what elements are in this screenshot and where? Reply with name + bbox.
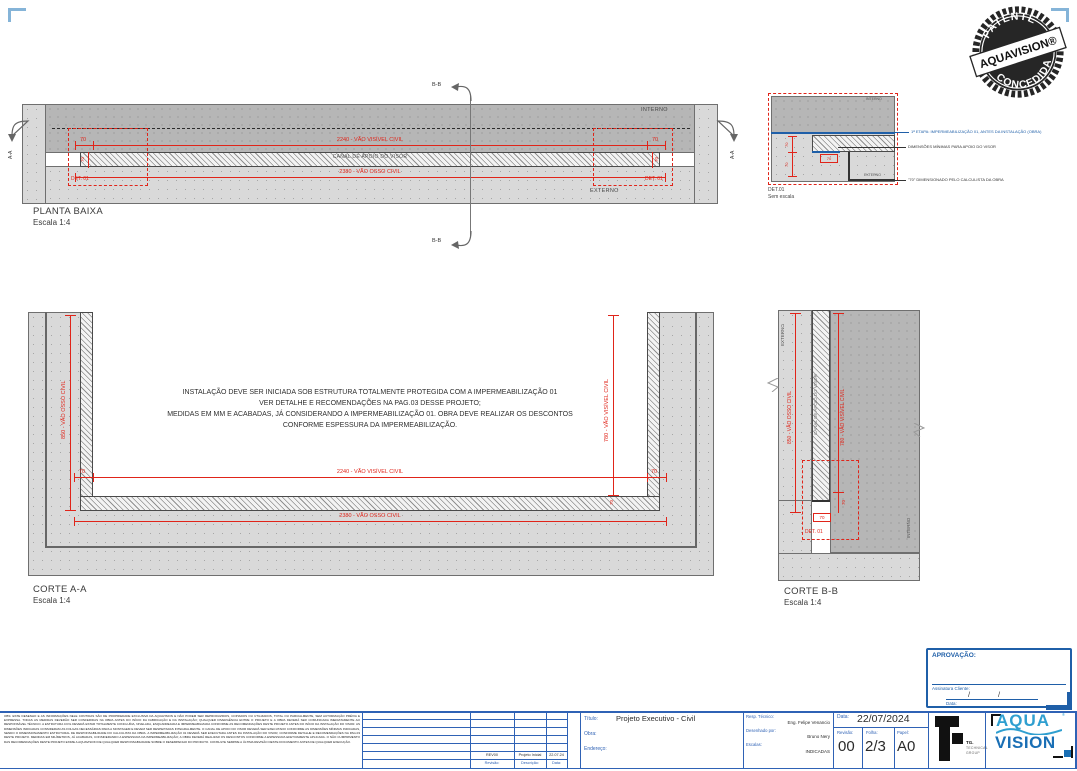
plan-dim-visivel: 2240 - VÃO VISÍVEL CIVIL [270,137,470,143]
resp-tecnico-label: Resp. Técnico: [746,714,774,719]
detail-dim-70-a: 70 [784,138,789,151]
dim-tick [74,517,75,526]
detail-impermeabilizacao-line [771,132,895,134]
corteaa-dim-visivel-line [74,477,666,478]
leader-line-dimensoes [838,147,906,148]
fine-print-notes: OBS: ESTE DESENHO E AS INFORMAÇÕES NELE … [4,714,360,767]
leader-line-blue [895,132,909,133]
approval-signature-label: Assinatura Cliente: [932,686,970,691]
corteaa-dim-visivel-vert: 780 - VÃO VISÍVEL CIVIL [604,350,610,470]
tb-vline [985,712,986,768]
escalas-label: Escalas: [746,742,762,747]
corteaa-dim-visivel-vert-line [613,315,614,496]
cortebb-slab-bottom [778,553,920,581]
approval-date-label: Data: [946,701,957,706]
papel-value: A0 [897,738,915,755]
plan-end-cap-right [694,104,718,204]
dim-tick [647,473,648,482]
revision-row-desc: Projeto Inicial [514,753,546,757]
data-label: Data: [837,714,849,720]
detail-scale: Sem escala [768,194,794,200]
aqua-bracket-br-v [1071,746,1073,758]
tb-vline [928,712,929,768]
rev-table-line [362,727,567,728]
folha-label: Folha: [866,730,878,735]
tg-logo [934,715,964,763]
cortebb-dim-osso-vert: 850 - VÃO OSSO CIVIL [787,355,793,480]
obra-label: Obra: [584,731,597,737]
note-line-2: VER DETALHE E RECOMENDAÇÕES NA PAG.03 DE… [120,399,620,410]
detail-impermeabilizacao-line-2 [812,151,840,153]
detail-step-line-v [848,152,850,180]
plan-cut-line-bb [470,96,471,236]
cortebb-det01-box [802,460,859,540]
detail-dim-line [792,136,793,177]
vision-logo-text: VISION [995,733,1056,753]
dim-tick [608,315,619,316]
dim-tick [788,136,797,137]
dim-tick [65,510,76,511]
corteaa-dim-osso-vert-line [70,315,71,511]
revision-header-date: Data: [546,761,567,765]
escalas-value: INDICADAS [746,749,830,754]
date-slash-1: / [968,690,970,699]
rev-table-vline [470,712,471,768]
section-arrow-bb-top [450,80,476,102]
dim-tick [65,315,76,316]
plan-title: PLANTA BAIXA [33,206,103,217]
aqua-blue-square [1064,750,1071,757]
tb-vline [743,712,744,768]
section-arrow-aa-right [716,118,742,144]
detail-canal-hatch [812,135,895,152]
corteaa-hatch-bottom [80,496,660,511]
dim-tick [74,473,75,482]
dim-tick [790,512,801,513]
revision-row-rev: REV00 [470,753,514,757]
corteaa-dim-70-left: 70 [79,469,85,475]
dim-tick [788,152,797,153]
dim-tick [666,517,667,526]
note-line-1: INSTALAÇÃO DEVE SER INICIADA SOB ESTRUTU… [120,388,620,399]
cortebb-label-interno: INTERNO [906,505,911,550]
detail-callout-calculista: "70" DIMENSIONADO PELO CALCULISTA DA OBR… [908,177,1004,182]
tb-vline-sub [894,727,895,768]
tb-vline-sub [862,727,863,768]
cortebb-title: CORTE B-B [784,586,838,597]
rev-table-vline [514,712,515,768]
corteaa-title: CORTE A-A [33,584,87,595]
rev-table-vline [546,712,547,768]
corteaa-hatch-right [647,312,660,511]
cortebb-label-canal: CANAL DE APOIO DO VISOR [813,350,818,460]
papel-label: Papel: [897,730,909,735]
corteaa-face-right [695,312,697,548]
revision-header-desc: Descrição: [514,761,546,765]
titleblock-bottom-border [0,768,1077,770]
plan-marker-bb-top: B-B [432,82,441,88]
detail-dim-70-box: 70 [820,154,838,163]
detail-label-interno: INTERNO [866,97,882,101]
corteaa-face-bottom [45,546,697,548]
corteaa-face-left [45,312,47,548]
tg-sub1: TECHNICAL [966,746,988,750]
leader-line-calculista [850,180,906,181]
plan-label-interno: INTERNO [641,107,668,113]
drawing-sheet: PATENTE CONCEDIDA AQUAVISION® 2240 - VÃO… [0,0,1077,771]
approval-title: APROVAÇÃO: [932,652,976,659]
plan-label-externo: EXTERNO [590,188,619,194]
corteaa-dim-osso-vert: 850 - VÃO OSSO CIVIL [61,350,67,470]
folha-value: 2/3 [865,738,886,755]
date-line [946,699,1038,700]
dim-tick [788,176,797,177]
note-line-4: CONFORME ESPESSURA DA IMPERMEABILIZAÇÃO. [120,421,620,432]
rev-table-vline [567,712,568,768]
tb-vline [833,712,834,768]
dim-tick [666,473,667,482]
aqua-bracket-br-h [1053,756,1063,758]
corteaa-dim-visivel-horiz: 2240 - VÃO VISÍVEL CIVIL [270,469,470,475]
plan-dim-line-osso [75,177,666,178]
cortebb-det01-label: DET. 01 [805,529,823,535]
revision-header-rev: Revisão: [470,761,514,765]
titulo-value: Projeto Executivo - Civil [616,714,695,723]
detail-wall-interno [771,96,895,133]
corteaa-hatch-left [80,312,93,511]
plan-scale: Escala 1:4 [33,218,70,227]
plan-marker-aa-left: A-A [8,146,14,164]
corteaa-scale: Escala 1:4 [33,596,70,605]
section-arrow-aa-left [4,118,30,144]
tg-sub2: GROUP [966,751,980,755]
rev-table-line [362,735,567,736]
break-mark-left [766,378,780,392]
section-arrow-bb-bottom [450,230,476,252]
revisao-label: Revisão: [837,730,853,735]
rev-table-line [362,719,567,720]
dim-tick [833,313,844,314]
titleblock-right-border [1075,711,1077,769]
detail-callout-impermeabilizacao: 1ª ETAPA: IMPERMEABILIZAÇÃO 01, ANTES DA… [911,129,1041,134]
corner-mark-top-right-v [1066,8,1069,22]
break-mark-right [912,423,926,437]
detail-callout-dimensoes: DIMENSÕES MÍNIMAS PARA APOIO DO VISOR [908,144,996,149]
dim-tick [93,473,94,482]
plan-dim-line-visivel [75,145,666,146]
data-value: 22/07/2024 [857,713,910,725]
plan-dim-osso: 2380 - VÃO OSSO CIVIL [270,169,470,175]
rev-table-vline [362,712,363,768]
endereco-label: Endereço: [584,746,607,752]
date-slash-2: / [998,690,1000,699]
tg-name: TG. [966,740,974,745]
plan-marker-aa-right: A-A [730,146,736,164]
signature-line [932,684,1066,685]
plan-marker-bb-bottom: B-B [432,238,441,244]
corteaa-note: INSTALAÇÃO DEVE SER INICIADA SOB ESTRUTU… [120,388,620,431]
rev-table-line [362,759,567,760]
corner-mark-top-left [8,8,26,11]
dim-tick [790,313,801,314]
detail-dim-70-b: 70 [784,158,789,171]
detail-label: DET.01 [768,187,784,193]
plan-det01-label-left: DET. 01 [71,176,89,182]
plan-label-canal: CANAL DE APOIO DO VISOR [270,154,470,160]
desenhado-label: Desenhado por: [746,728,776,733]
plan-det01-label-right: DET. 01 [645,176,663,182]
corteaa-dim-osso-horiz: 2380 - VÃO OSSO CIVIL [270,513,470,519]
cortebb-scale: Escala 1:4 [784,598,821,607]
detail-label-externo: EXTERNO [864,173,881,177]
revision-row-date: 22.07.24 [546,753,567,757]
patent-stamp: PATENTE CONCEDIDA AQUAVISION® [958,0,1077,112]
revisao-value: 00 [838,738,855,755]
cortebb-label-externo: EXTERNO [780,314,785,356]
note-line-3: MEDIDAS EM MM E ACABADAS, JÁ CONSIDERAND… [120,410,620,421]
tb-hline [833,727,928,728]
corner-mark-top-left-v [8,8,11,22]
aqua-registered-mark: ® [1062,712,1065,717]
corteaa-dim-osso-line [74,521,666,522]
titulo-label: Título: [584,716,598,722]
aqua-bracket-tl-v [991,714,993,726]
resp-tecnico-value: Eng. Felipe Venancio [746,720,830,725]
tb-vline [580,712,581,768]
corteaa-dim-70-right: 70 [651,469,657,475]
cortebb-dim-osso-line [795,313,796,513]
titleblock-top-border [0,711,1077,713]
corteaa-dim-70-bottom: 70 [609,495,614,510]
rev-table-line [362,743,567,744]
desenhado-value: Bruno Nery [746,734,830,739]
